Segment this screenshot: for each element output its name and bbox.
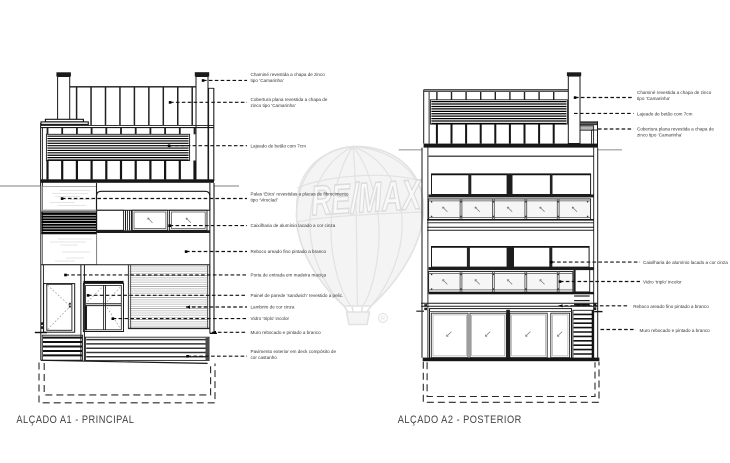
svg-text:zinco tipo ‘Camarinha’: zinco tipo ‘Camarinha’: [637, 133, 682, 138]
svg-text:Porta de entrada em madeira ma: Porta de entrada em madeira maciça: [251, 272, 327, 277]
svg-text:Reboco areado fino pintado a b: Reboco areado fino pintado a branco: [251, 249, 327, 254]
svg-text:Pavimento exterior em deck com: Pavimento exterior em deck compósito de: [251, 349, 337, 354]
svg-text:Caixilharia de alumínio lacado: Caixilharia de alumínio lacado a cor cin…: [251, 223, 336, 228]
svg-text:ALÇADO A1 - PRINCIPAL: ALÇADO A1 - PRINCIPAL: [16, 414, 134, 426]
svg-text:tipo ‘Camarinha’: tipo ‘Camarinha’: [251, 78, 284, 83]
svg-text:zinco tipo ‘Camarinha’: zinco tipo ‘Camarinha’: [251, 103, 296, 108]
svg-text:Cobertura plana revestida a ch: Cobertura plana revestida a chapa de: [251, 97, 328, 102]
svg-text:ALÇADO A2 - POSTERIOR: ALÇADO A2 - POSTERIOR: [398, 414, 522, 426]
svg-text:Muro rebocado e pintado a bran: Muro rebocado e pintado a branco: [640, 328, 711, 333]
svg-text:tipo ‘Camarinha’: tipo ‘Camarinha’: [637, 96, 670, 101]
svg-text:Chaminé revestida a chapa de z: Chaminé revestida a chapa de zinco: [637, 90, 712, 95]
svg-text:R: R: [381, 316, 386, 323]
svg-text:Muro rebocado e pintado a bran: Muro rebocado e pintado a branco: [251, 330, 322, 335]
svg-text:RE/MAX: RE/MAX: [310, 171, 425, 225]
svg-text:cor castanho: cor castanho: [251, 355, 278, 360]
svg-text:Chaminé revestida a chapa de z: Chaminé revestida a chapa de zinco: [251, 72, 326, 77]
svg-text:Vidro ‘triplo’ incolor: Vidro ‘triplo’ incolor: [643, 279, 682, 284]
svg-text:Caixilharia de alumínio lacado: Caixilharia de alumínio lacado a cor cin…: [643, 260, 728, 265]
svg-text:Palas ‘Etics’ revestidas a pla: Palas ‘Etics’ revestidas a placas de fib…: [251, 192, 349, 197]
svg-text:Vidro ‘triplo’ incolor: Vidro ‘triplo’ incolor: [251, 316, 290, 321]
svg-text:Lambrim de cor cinza: Lambrim de cor cinza: [251, 305, 295, 310]
svg-text:Painel de parede ‘sandwich’ re: Painel de parede ‘sandwich’ revestido a …: [251, 293, 344, 298]
svg-text:Reboco areado fino pintado a b: Reboco areado fino pintado a branco: [633, 304, 709, 309]
svg-text:tipo ‘Viroclad’: tipo ‘Viroclad’: [251, 198, 278, 203]
svg-text:Lajeado de betão com 7cm: Lajeado de betão com 7cm: [637, 111, 693, 116]
svg-text:Cobertura plana revestida a ch: Cobertura plana revestida a chapa de: [637, 127, 714, 132]
svg-text:Lajeado de betão com 7cm: Lajeado de betão com 7cm: [251, 143, 307, 148]
